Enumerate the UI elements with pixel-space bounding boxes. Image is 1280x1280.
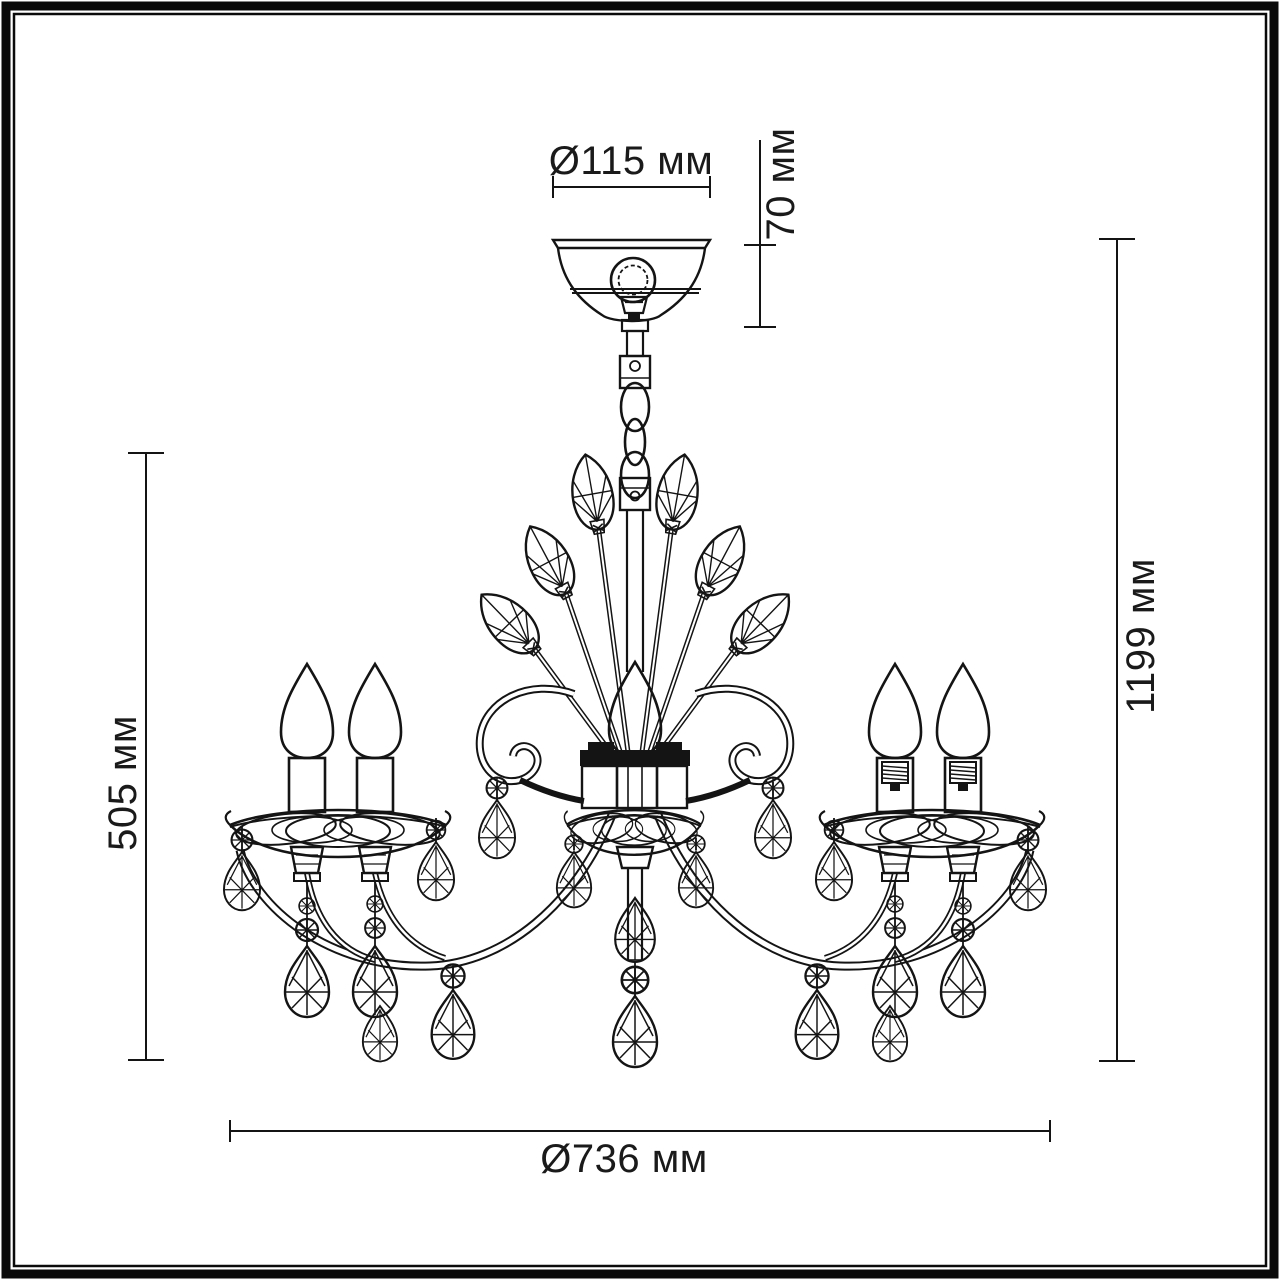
candle-bulb-left-inner — [349, 664, 401, 812]
leaf-crystal — [566, 451, 619, 537]
central-hub — [580, 742, 690, 808]
chandelier-dimension-diagram: Ø115 мм 70 мм 505 мм 1199 мм Ø736 мм — [0, 0, 1280, 1280]
canopy-diameter-label: Ø115 мм — [549, 139, 714, 183]
dimension-canopy-diameter: Ø115 мм — [549, 139, 714, 198]
diagram-page: Ø115 мм 70 мм 505 мм 1199 мм Ø736 мм — [0, 0, 1280, 1280]
page-frame — [6, 6, 1274, 1274]
overall-diameter-label: Ø736 мм — [540, 1137, 707, 1181]
dimension-overall-height: 1199 мм — [1099, 239, 1163, 1061]
leaf-crystal — [513, 517, 586, 606]
bobeche-right — [820, 809, 1045, 857]
canopy-height-label: 70 мм — [759, 127, 803, 240]
leaf-crystal — [651, 451, 704, 537]
leaf-stems — [534, 529, 735, 757]
candle-bulb-right-outer — [937, 664, 989, 812]
bobeche-left — [226, 809, 451, 857]
dimension-canopy-height: 70 мм — [744, 127, 803, 327]
leaf-crystal — [685, 517, 758, 606]
scroll-ornaments — [480, 689, 791, 801]
body-height-label: 505 мм — [101, 715, 145, 851]
overall-height-label: 1199 мм — [1119, 558, 1163, 714]
dimension-overall-diameter: Ø736 мм — [230, 1120, 1050, 1181]
ceiling-canopy — [553, 240, 710, 321]
central-lower-stem — [615, 847, 655, 962]
candle-bulb-left-outer — [281, 664, 333, 812]
candle-bulb-right-inner — [869, 664, 921, 812]
dimension-body-height: 505 мм — [101, 453, 164, 1060]
chandelier-drawing — [224, 240, 1046, 1067]
hanging-rod-and-chain — [620, 320, 650, 672]
